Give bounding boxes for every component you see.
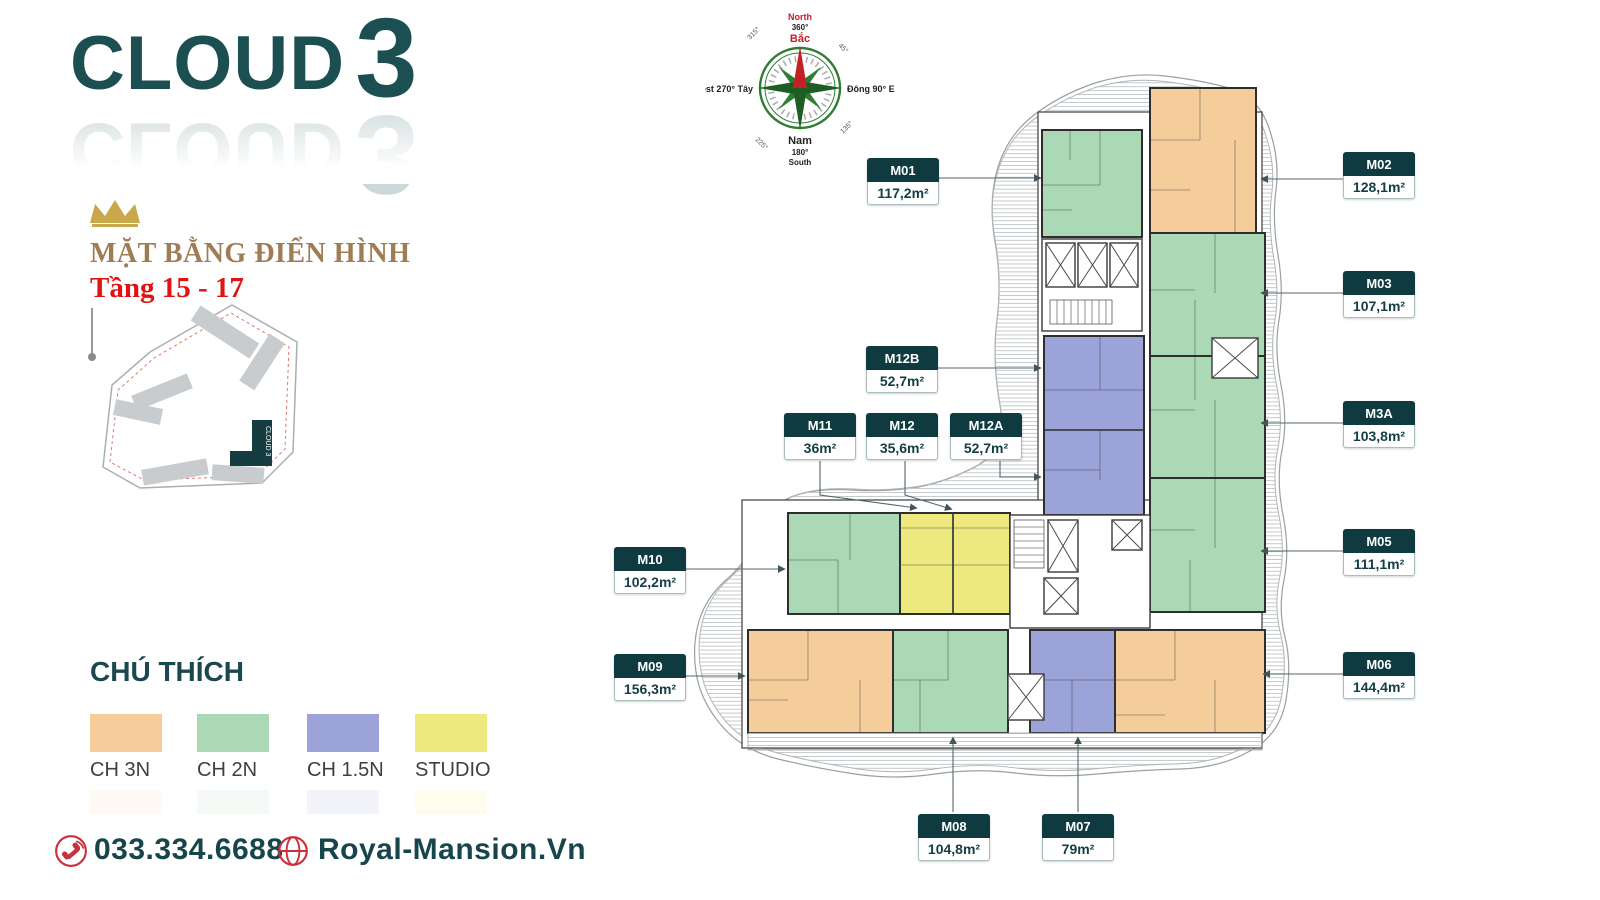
unit-M02-shape <box>1150 88 1256 233</box>
unit-label-M12A: M12A52,7m² <box>950 413 1022 460</box>
unit-M01-shape <box>1042 130 1142 237</box>
unit-label-M07: M0779m² <box>1042 814 1114 861</box>
unit-label-M01: M01117,2m² <box>867 158 939 205</box>
unit-label-M12B: M12B52,7m² <box>866 346 938 393</box>
bottom-balcony-strip <box>748 733 1262 750</box>
unit-M08-shape <box>893 630 1008 733</box>
unit-label-M09: M09156,3m² <box>614 654 686 701</box>
unit-M10-shape <box>788 513 900 614</box>
unit-M09-shape <box>748 630 893 733</box>
unit-M06-shape <box>1115 630 1265 733</box>
unit-label-M12: M1235,6m² <box>866 413 938 460</box>
unit-label-M3A: M3A103,8m² <box>1343 401 1415 448</box>
unit-label-M11: M1136m² <box>784 413 856 460</box>
unit-label-M02: M02128,1m² <box>1343 152 1415 199</box>
unit-label-M10: M10102,2m² <box>614 547 686 594</box>
unit-label-M06: M06144,4m² <box>1343 652 1415 699</box>
unit-label-M08: M08104,8m² <box>918 814 990 861</box>
unit-label-M03: M03107,1m² <box>1343 271 1415 318</box>
unit-label-M05: M05111,1m² <box>1343 529 1415 576</box>
unit-M05-shape <box>1150 478 1265 612</box>
unit-M12B-M12A-shape <box>1044 336 1144 515</box>
floorplan-poster: CLOUD 3 CLOUD 3 MẶT BẰNG ĐIỂN HÌNH Tầng … <box>0 0 1600 900</box>
